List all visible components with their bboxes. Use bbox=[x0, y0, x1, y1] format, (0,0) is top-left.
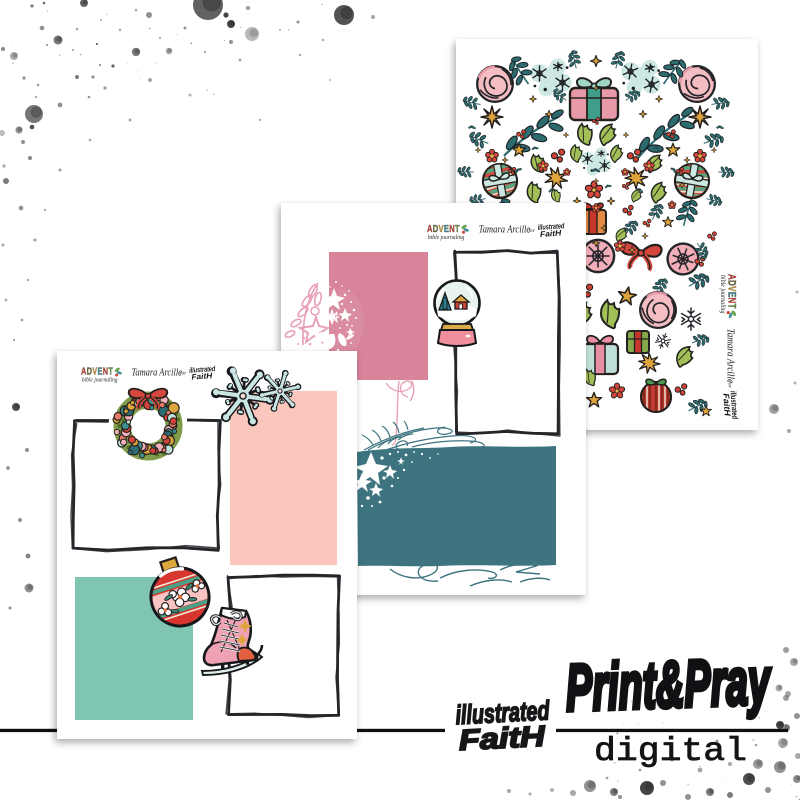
svg-text:for: for bbox=[727, 381, 734, 388]
svg-text:FaitH: FaitH bbox=[540, 228, 562, 238]
svg-text:FaitH: FaitH bbox=[721, 393, 733, 417]
svg-text:for: for bbox=[180, 370, 187, 377]
svg-text:Tamara Arcille: Tamara Arcille bbox=[131, 367, 182, 378]
svg-text:bible journaling: bible journaling bbox=[82, 377, 118, 384]
svg-text:Tamara Arcille: Tamara Arcille bbox=[725, 329, 737, 384]
svg-text:digital: digital bbox=[594, 733, 747, 770]
svg-text:Print&Pray: Print&Pray bbox=[565, 643, 773, 724]
svg-text:bible journaling: bible journaling bbox=[428, 234, 465, 241]
svg-text:FaitH: FaitH bbox=[191, 371, 213, 381]
svg-text:Tamara Arcille: Tamara Arcille bbox=[479, 225, 531, 236]
svg-text:bible journaling: bible journaling bbox=[719, 275, 727, 314]
svg-text:for: for bbox=[528, 227, 535, 234]
svg-text:FaitH: FaitH bbox=[458, 721, 547, 758]
